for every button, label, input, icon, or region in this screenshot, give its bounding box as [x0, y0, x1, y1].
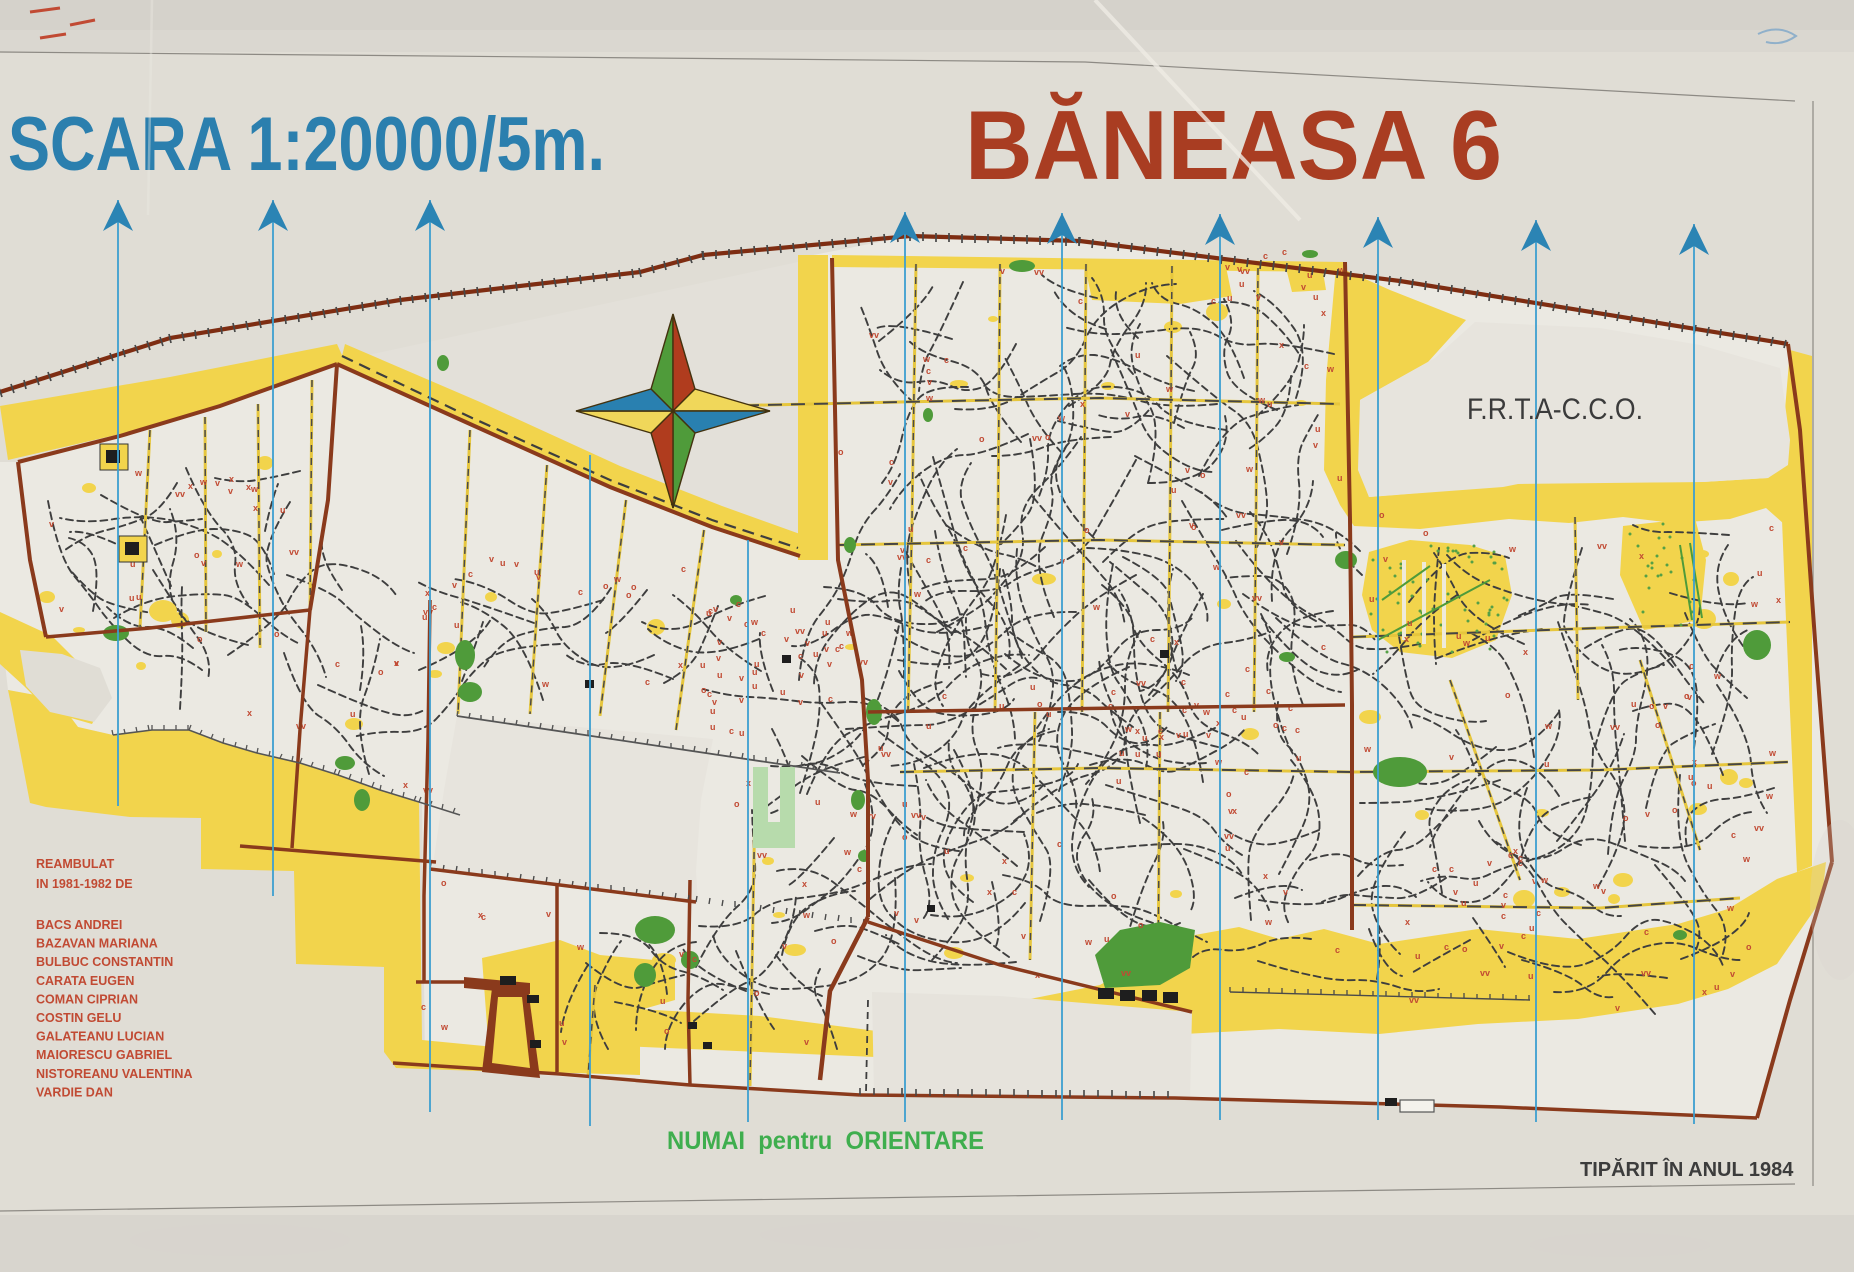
svg-text:c: c — [1263, 251, 1268, 261]
svg-text:GALATEANU LUCIAN: GALATEANU LUCIAN — [36, 1030, 164, 1044]
svg-text:c: c — [708, 606, 713, 616]
svg-text:o: o — [1423, 528, 1429, 538]
svg-text:c: c — [1158, 726, 1163, 736]
svg-text:v: v — [1237, 264, 1242, 274]
svg-text:c: c — [1503, 890, 1508, 900]
svg-text:c: c — [468, 569, 473, 579]
svg-text:v: v — [452, 580, 457, 590]
svg-text:w: w — [843, 847, 852, 857]
svg-text:w: w — [1765, 791, 1774, 801]
svg-text:c: c — [835, 644, 840, 654]
svg-text:u: u — [1119, 748, 1125, 758]
svg-text:c: c — [1078, 296, 1083, 306]
svg-text:c: c — [1150, 634, 1155, 644]
svg-text:v: v — [805, 638, 810, 648]
svg-text:vv: vv — [795, 626, 805, 636]
svg-text:BAZAVAN MARIANA: BAZAVAN MARIANA — [36, 937, 158, 951]
svg-text:o: o — [1045, 432, 1051, 442]
svg-text:u: u — [1415, 951, 1421, 961]
svg-text:u: u — [534, 567, 540, 577]
svg-text:x: x — [1405, 917, 1410, 927]
svg-text:COMAN CIPRIAN: COMAN CIPRIAN — [36, 992, 138, 1006]
svg-text:v: v — [727, 613, 732, 623]
svg-text:vv: vv — [1480, 968, 1490, 978]
svg-text:v: v — [824, 644, 829, 654]
svg-text:v: v — [1601, 886, 1606, 896]
svg-text:c: c — [1295, 725, 1300, 735]
svg-text:u: u — [1315, 424, 1321, 434]
svg-text:w: w — [913, 589, 922, 599]
svg-text:c: c — [481, 912, 486, 922]
svg-text:w: w — [250, 484, 259, 494]
svg-text:u: u — [1156, 749, 1162, 759]
svg-text:w: w — [925, 393, 934, 403]
svg-text:BACS ANDREI: BACS ANDREI — [36, 918, 122, 932]
svg-text:vv: vv — [1136, 678, 1146, 688]
svg-text:c: c — [736, 599, 741, 609]
svg-text:u: u — [717, 670, 723, 680]
svg-text:w: w — [1165, 384, 1174, 394]
svg-text:o: o — [631, 582, 637, 592]
svg-text:v: v — [1663, 701, 1668, 711]
svg-text:x: x — [229, 474, 234, 484]
svg-text:v: v — [716, 653, 721, 663]
svg-text:vv: vv — [175, 489, 185, 499]
svg-text:u: u — [1461, 898, 1467, 908]
svg-text:v: v — [1279, 537, 1284, 547]
svg-text:u: u — [660, 996, 666, 1006]
svg-text:u: u — [710, 722, 716, 732]
svg-text:u: u — [780, 687, 786, 697]
svg-text:u: u — [500, 558, 506, 568]
svg-text:c: c — [1769, 523, 1774, 533]
svg-text:vv: vv — [1252, 593, 1262, 603]
svg-text:c: c — [1521, 931, 1526, 941]
svg-text:u: u — [1631, 699, 1637, 709]
svg-text:v: v — [1449, 752, 1454, 762]
svg-text:o: o — [1111, 891, 1117, 901]
svg-text:u: u — [908, 524, 914, 534]
svg-text:c: c — [1266, 686, 1271, 696]
svg-text:BULBUC CONSTANTIN: BULBUC CONSTANTIN — [36, 955, 173, 969]
svg-text:u: u — [1369, 594, 1375, 604]
svg-text:vv: vv — [881, 749, 891, 759]
svg-text:MAIORESCU GABRIEL: MAIORESCU GABRIEL — [36, 1048, 172, 1062]
svg-text:w: w — [1742, 854, 1751, 864]
svg-text:v: v — [489, 554, 494, 564]
svg-text:u: u — [710, 706, 716, 716]
svg-text:x: x — [247, 708, 252, 718]
svg-text:w: w — [1592, 881, 1601, 891]
svg-text:v: v — [228, 486, 233, 496]
svg-text:x: x — [802, 879, 807, 889]
svg-text:v: v — [1501, 900, 1506, 910]
svg-text:SCARA 1:20000/5m.: SCARA 1:20000/5m. — [8, 102, 605, 187]
svg-text:o: o — [1672, 805, 1678, 815]
svg-text:o: o — [1505, 690, 1511, 700]
svg-text:c: c — [1282, 247, 1287, 257]
svg-text:c: c — [1282, 723, 1287, 733]
svg-text:u: u — [752, 667, 758, 677]
svg-text:o: o — [1138, 920, 1144, 930]
svg-text:c: c — [1321, 642, 1326, 652]
svg-text:o: o — [701, 685, 707, 695]
svg-text:c: c — [1304, 361, 1309, 371]
svg-text:w: w — [235, 559, 244, 569]
svg-text:w: w — [1768, 748, 1777, 758]
svg-text:x: x — [253, 503, 258, 513]
svg-text:u: u — [752, 681, 758, 691]
svg-text:x: x — [403, 780, 408, 790]
svg-text:x: x — [1135, 726, 1140, 736]
svg-text:v: v — [804, 1037, 809, 1047]
svg-text:w: w — [440, 1022, 449, 1032]
svg-text:u: u — [559, 1018, 565, 1028]
svg-text:u: u — [1135, 749, 1141, 759]
svg-text:u: u — [1313, 292, 1319, 302]
svg-text:c: c — [1444, 942, 1449, 952]
svg-text:c: c — [1211, 296, 1216, 306]
svg-text:u: u — [815, 797, 821, 807]
svg-text:u: u — [350, 709, 356, 719]
svg-text:vv: vv — [289, 547, 299, 557]
svg-text:v: v — [1225, 262, 1230, 272]
svg-text:vv: vv — [1597, 541, 1607, 551]
svg-text:c: c — [798, 651, 803, 661]
svg-text:u: u — [1407, 618, 1413, 628]
svg-text:w: w — [1326, 364, 1335, 374]
svg-text:w: w — [541, 679, 550, 689]
svg-text:v: v — [894, 908, 899, 918]
svg-text:o: o — [1379, 510, 1385, 520]
svg-text:x: x — [246, 482, 251, 492]
svg-text:v: v — [799, 670, 804, 680]
svg-text:x: x — [1263, 871, 1268, 881]
svg-text:o: o — [1655, 720, 1661, 730]
svg-text:c: c — [761, 628, 766, 638]
svg-text:v: v — [1185, 465, 1190, 475]
svg-text:x: x — [1639, 551, 1644, 561]
svg-text:c: c — [1508, 850, 1513, 860]
svg-text:x: x — [1321, 308, 1326, 318]
svg-text:w: w — [1092, 602, 1101, 612]
svg-text:c: c — [1181, 677, 1186, 687]
svg-text:c: c — [1501, 911, 1506, 921]
svg-text:REAMBULAT: REAMBULAT — [36, 857, 115, 871]
svg-text:v: v — [546, 909, 551, 919]
svg-text:VARDIE DAN: VARDIE DAN — [36, 1085, 113, 1099]
svg-text:v: v — [1687, 692, 1692, 702]
svg-text:u: u — [1473, 878, 1479, 888]
svg-text:x: x — [678, 660, 683, 670]
svg-text:u: u — [1227, 293, 1233, 303]
svg-text:v: v — [1383, 554, 1388, 564]
svg-text:v: v — [1206, 730, 1211, 740]
svg-text:v: v — [201, 558, 206, 568]
svg-text:v: v — [739, 673, 744, 683]
svg-text:v: v — [784, 634, 789, 644]
svg-text:c: c — [729, 726, 734, 736]
svg-text:x: x — [987, 887, 992, 897]
svg-text:o: o — [378, 667, 384, 677]
svg-text:w: w — [750, 617, 759, 627]
svg-text:o: o — [626, 590, 632, 600]
svg-text:o: o — [1746, 942, 1752, 952]
svg-text:vv: vv — [1236, 510, 1246, 520]
svg-text:v: v — [1256, 292, 1261, 302]
svg-text:vv: vv — [1224, 831, 1234, 841]
svg-text:u: u — [1116, 776, 1122, 786]
svg-text:x: x — [1080, 399, 1085, 409]
svg-text:w: w — [1257, 395, 1266, 405]
svg-text:v: v — [394, 658, 399, 668]
svg-text:w: w — [1245, 464, 1254, 474]
svg-text:u: u — [1267, 399, 1273, 409]
svg-text:w: w — [1544, 721, 1553, 731]
svg-text:CARATA EUGEN: CARATA EUGEN — [36, 974, 134, 988]
svg-text:COSTIN GELU: COSTIN GELU — [36, 1011, 121, 1025]
svg-text:w: w — [1726, 903, 1735, 913]
svg-text:BĂNEASA 6: BĂNEASA 6 — [965, 90, 1502, 200]
svg-text:c: c — [1432, 864, 1437, 874]
svg-text:u: u — [926, 721, 932, 731]
svg-text:o: o — [603, 581, 609, 591]
svg-text:v: v — [1176, 730, 1181, 740]
svg-text:u: u — [422, 612, 428, 622]
svg-text:x: x — [1232, 806, 1237, 816]
svg-text:F.R.T.A-C.C.O.: F.R.T.A-C.C.O. — [1467, 393, 1643, 426]
svg-text:v: v — [1301, 282, 1306, 292]
svg-text:c: c — [926, 366, 931, 376]
svg-text:u: u — [944, 846, 950, 856]
svg-text:vv: vv — [1754, 823, 1764, 833]
svg-text:v: v — [1453, 887, 1458, 897]
svg-text:u: u — [1142, 733, 1148, 743]
svg-text:o: o — [831, 936, 837, 946]
svg-text:c: c — [335, 659, 340, 669]
svg-text:c: c — [1644, 927, 1649, 937]
svg-text:x: x — [188, 481, 193, 491]
svg-text:c: c — [963, 543, 968, 553]
svg-text:u: u — [825, 617, 831, 627]
svg-text:o: o — [274, 629, 280, 639]
svg-text:o: o — [1226, 789, 1232, 799]
svg-text:o: o — [838, 447, 844, 457]
svg-text:o: o — [1623, 813, 1629, 823]
svg-text:c: c — [944, 355, 949, 365]
svg-text:u: u — [1544, 759, 1550, 769]
svg-text:vv: vv — [757, 850, 767, 860]
svg-text:v: v — [921, 812, 926, 822]
svg-text:c: c — [578, 587, 583, 597]
svg-text:c: c — [1335, 945, 1340, 955]
svg-text:v: v — [1615, 1003, 1620, 1013]
svg-text:v: v — [1000, 266, 1005, 276]
svg-text:u: u — [1707, 781, 1713, 791]
svg-text:w: w — [1508, 544, 1517, 554]
svg-text:c: c — [421, 1002, 426, 1012]
svg-text:w: w — [134, 468, 143, 478]
svg-text:v: v — [1021, 931, 1026, 941]
svg-text:v: v — [1313, 440, 1318, 450]
svg-text:x: x — [1523, 647, 1528, 657]
svg-text:v: v — [562, 1037, 567, 1047]
svg-text:u: u — [1714, 982, 1720, 992]
svg-text:x: x — [1776, 595, 1781, 605]
svg-text:v: v — [59, 604, 64, 614]
svg-text:w: w — [1264, 917, 1273, 927]
svg-text:c: c — [1244, 767, 1249, 777]
svg-text:v: v — [1189, 520, 1194, 530]
svg-text:v: v — [782, 941, 787, 951]
svg-text:c: c — [1012, 887, 1017, 897]
svg-text:w: w — [613, 574, 622, 584]
svg-text:w: w — [802, 910, 811, 920]
svg-text:v: v — [49, 519, 54, 529]
svg-text:o: o — [979, 434, 985, 444]
svg-text:w: w — [1750, 599, 1759, 609]
svg-text:w: w — [576, 942, 585, 952]
svg-text:c: c — [942, 691, 947, 701]
svg-text:c: c — [857, 864, 862, 874]
svg-text:u: u — [1225, 843, 1231, 853]
svg-text:c: c — [1245, 664, 1250, 674]
svg-text:u: u — [1337, 473, 1343, 483]
svg-text:vv: vv — [911, 810, 921, 820]
svg-text:o: o — [1200, 470, 1206, 480]
svg-text:w: w — [922, 354, 931, 364]
svg-text:w: w — [1214, 757, 1223, 767]
svg-text:w: w — [849, 809, 858, 819]
svg-text:vv: vv — [1034, 267, 1044, 277]
svg-text:o: o — [664, 1026, 670, 1036]
svg-text:u: u — [1171, 485, 1177, 495]
svg-text:o: o — [1462, 944, 1468, 954]
svg-text:v: v — [679, 949, 684, 959]
svg-text:IN 1981-1982 DE: IN 1981-1982 DE — [36, 877, 133, 891]
svg-text:vv: vv — [869, 330, 879, 340]
svg-text:u: u — [1030, 682, 1036, 692]
svg-text:v: v — [1283, 887, 1288, 897]
svg-text:c: c — [1731, 830, 1736, 840]
svg-text:v: v — [798, 697, 803, 707]
svg-text:c: c — [1449, 864, 1454, 874]
svg-text:vv: vv — [1032, 433, 1042, 443]
svg-text:x: x — [1002, 856, 1007, 866]
svg-text:w: w — [1462, 638, 1471, 648]
svg-text:o: o — [1649, 701, 1655, 711]
svg-text:vv: vv — [1641, 968, 1651, 978]
svg-text:v: v — [1645, 809, 1650, 819]
svg-text:w: w — [1713, 671, 1722, 681]
svg-text:u: u — [1757, 568, 1763, 578]
svg-text:o: o — [734, 799, 740, 809]
svg-text:u: u — [1239, 279, 1245, 289]
svg-text:o: o — [441, 878, 447, 888]
svg-text:u: u — [1183, 729, 1189, 739]
svg-text:w: w — [1124, 724, 1133, 734]
svg-text:u: u — [813, 649, 819, 659]
svg-text:v: v — [717, 637, 722, 647]
svg-text:w: w — [1540, 875, 1549, 885]
svg-text:o: o — [1273, 720, 1279, 730]
svg-text:v: v — [827, 659, 832, 669]
svg-text:w: w — [1363, 744, 1372, 754]
svg-text:NISTOREANU VALENTINA: NISTOREANU VALENTINA — [36, 1067, 193, 1081]
svg-text:u: u — [700, 660, 706, 670]
svg-text:x: x — [1404, 634, 1409, 644]
svg-text:o: o — [194, 550, 200, 560]
svg-text:u: u — [1296, 753, 1302, 763]
svg-text:c: c — [926, 555, 931, 565]
svg-text:v: v — [1730, 969, 1735, 979]
svg-text:u: u — [1529, 923, 1535, 933]
svg-text:v: v — [713, 604, 718, 614]
svg-text:v: v — [914, 915, 919, 925]
svg-text:v: v — [514, 559, 519, 569]
svg-text:u: u — [1528, 971, 1534, 981]
svg-text:u: u — [739, 728, 745, 738]
svg-text:x: x — [1279, 340, 1284, 350]
svg-text:vv: vv — [1610, 722, 1620, 732]
svg-text:c: c — [1518, 858, 1523, 868]
svg-text:x: x — [1702, 987, 1707, 997]
svg-text:c: c — [1225, 689, 1230, 699]
svg-text:NUMAI pentru ORIENTARE: NUMAI pentru ORIENTARE — [667, 1127, 984, 1155]
svg-text:TIPĂRIT ÎN ANUL 1984: TIPĂRIT ÎN ANUL 1984 — [1580, 1157, 1794, 1181]
svg-text:u: u — [1241, 712, 1247, 722]
svg-text:u: u — [454, 620, 460, 630]
svg-text:o: o — [197, 634, 203, 644]
svg-text:u: u — [1456, 631, 1462, 641]
svg-text:v: v — [888, 477, 893, 487]
svg-text:c: c — [681, 564, 686, 574]
svg-text:w: w — [1084, 937, 1093, 947]
svg-text:u: u — [790, 605, 796, 615]
svg-text:u: u — [129, 593, 135, 603]
svg-text:u: u — [280, 505, 286, 515]
svg-text:v: v — [1499, 941, 1504, 951]
svg-text:u: u — [136, 592, 142, 602]
svg-text:v: v — [739, 695, 744, 705]
svg-text:v: v — [215, 478, 220, 488]
svg-text:u: u — [1485, 633, 1491, 643]
svg-text:v: v — [1125, 409, 1130, 419]
svg-text:v: v — [927, 377, 932, 387]
svg-text:u: u — [1688, 772, 1694, 782]
svg-text:u: u — [1135, 350, 1141, 360]
svg-text:c: c — [645, 677, 650, 687]
svg-text:u: u — [822, 628, 828, 638]
svg-text:v: v — [1487, 858, 1492, 868]
svg-text:x: x — [1174, 637, 1179, 647]
svg-text:u: u — [1104, 934, 1110, 944]
svg-text:c: c — [889, 457, 894, 467]
svg-text:c: c — [1111, 687, 1116, 697]
svg-text:o: o — [1084, 525, 1090, 535]
svg-text:c: c — [828, 694, 833, 704]
svg-text:c: c — [432, 602, 437, 612]
svg-text:w: w — [199, 477, 208, 487]
svg-text:vv: vv — [1121, 968, 1131, 978]
svg-text:c: c — [692, 954, 697, 964]
svg-text:o: o — [754, 988, 760, 998]
